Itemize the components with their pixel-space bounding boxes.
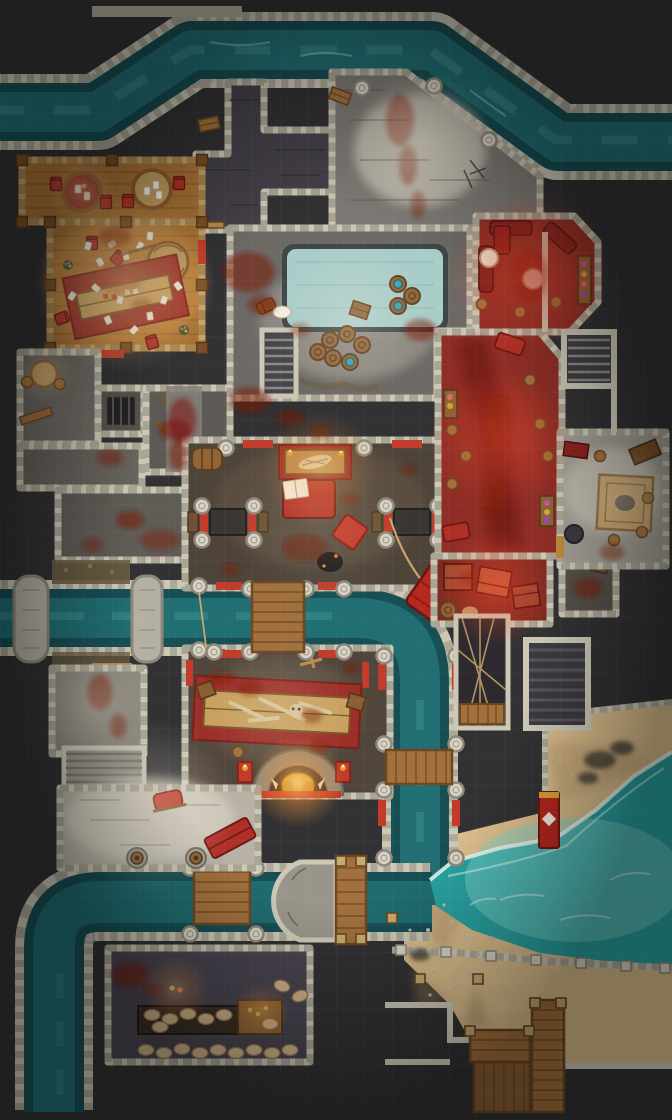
vignette: [0, 0, 672, 1120]
map-canvas: [0, 0, 672, 1120]
battle-map: [0, 0, 672, 1120]
